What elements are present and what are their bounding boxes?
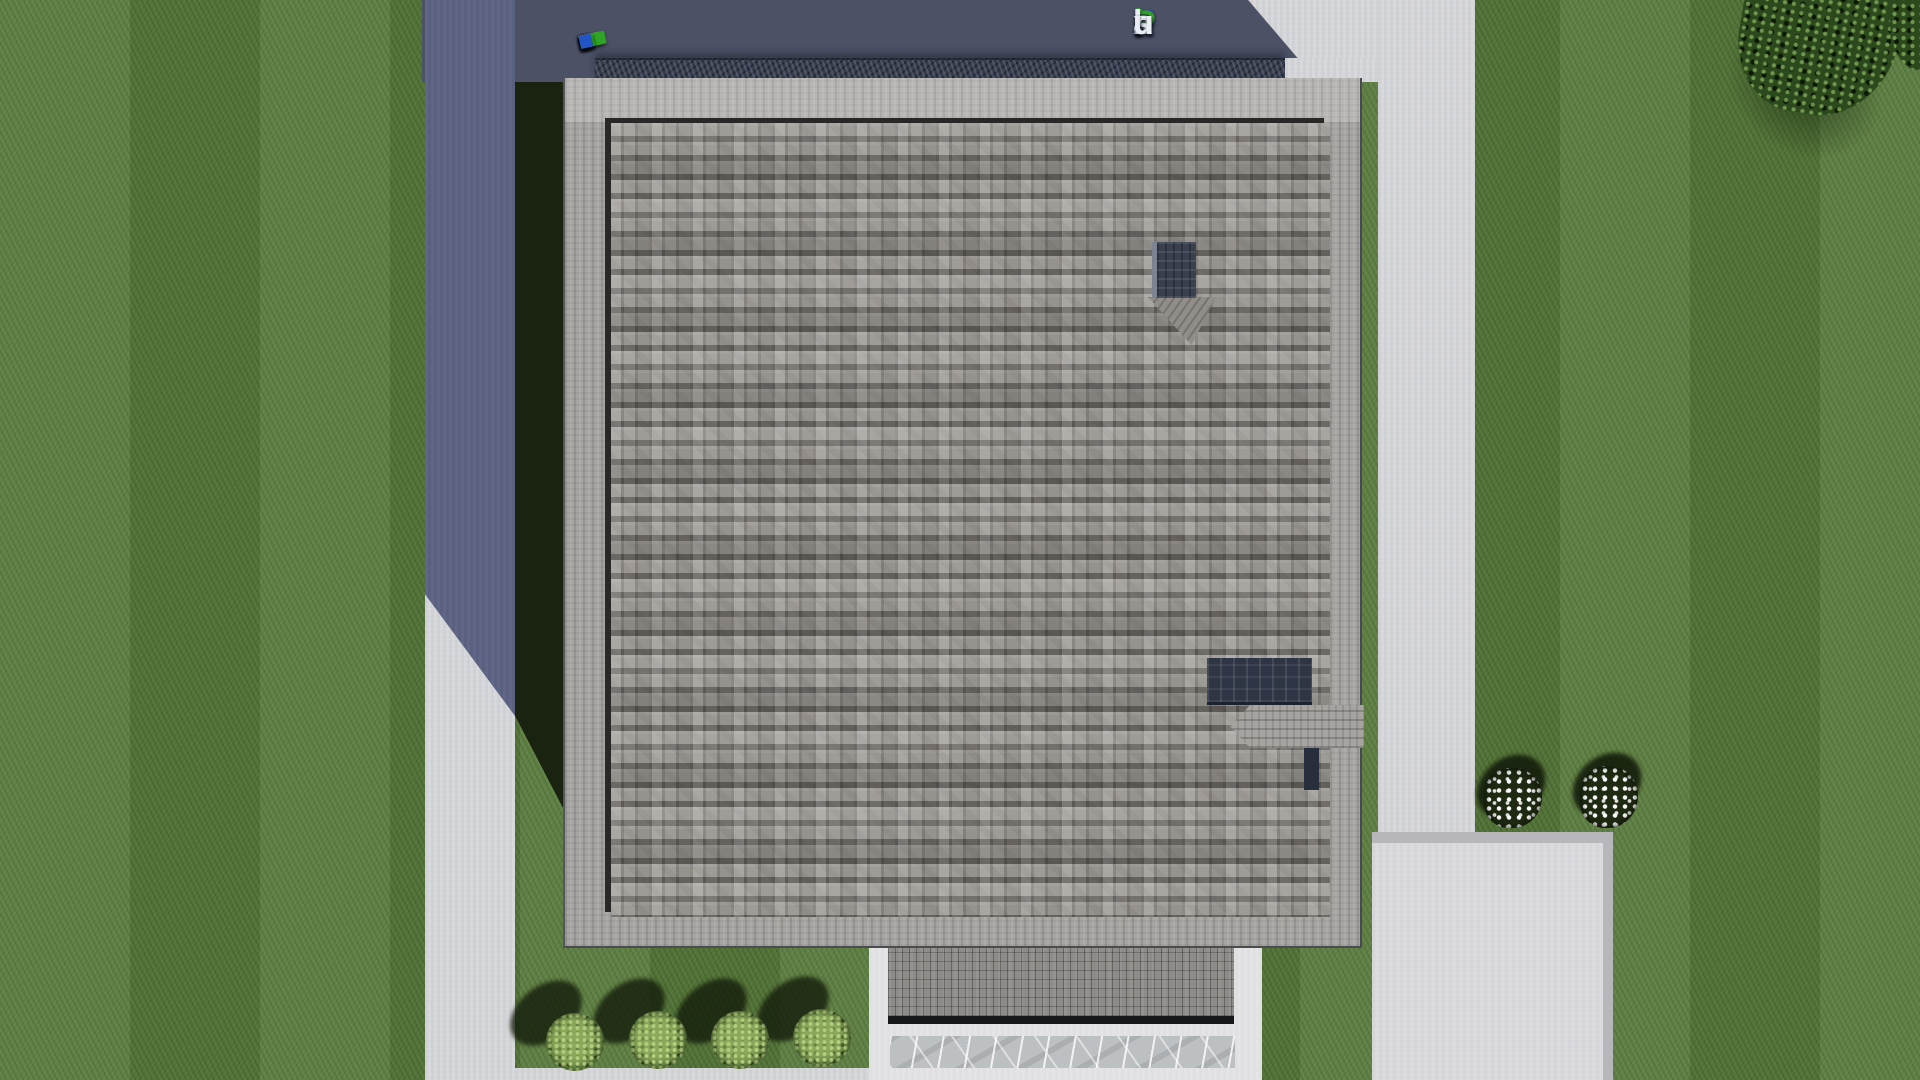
watermark-tab bbox=[579, 34, 594, 49]
bottom-walkway bbox=[425, 1068, 870, 1080]
roof-edge-frame bbox=[605, 118, 1324, 912]
main-roof bbox=[563, 78, 1362, 948]
driveway-pad bbox=[1372, 832, 1613, 1080]
bush bbox=[546, 1013, 604, 1071]
roof-skylight bbox=[1207, 658, 1312, 705]
porch-step-shadow bbox=[888, 1016, 1234, 1024]
bush bbox=[711, 1011, 769, 1069]
bush bbox=[629, 1011, 687, 1069]
porch-pavers bbox=[888, 948, 1234, 1016]
chimney bbox=[1152, 242, 1196, 298]
house-shadow-grass bbox=[515, 82, 563, 808]
house-shadow-path bbox=[425, 0, 515, 716]
roof-shingles bbox=[611, 123, 1330, 917]
roof-dormer bbox=[1230, 705, 1364, 748]
roof-dormer-gap bbox=[1304, 748, 1319, 790]
bush bbox=[793, 1009, 851, 1067]
stone-walkway bbox=[890, 1036, 1235, 1068]
logo-letter: u bbox=[1133, 4, 1155, 43]
entrance-porch bbox=[869, 948, 1262, 1080]
right-walkway bbox=[1378, 0, 1475, 832]
scene: FıxPlans.ru bbox=[0, 0, 1920, 1080]
